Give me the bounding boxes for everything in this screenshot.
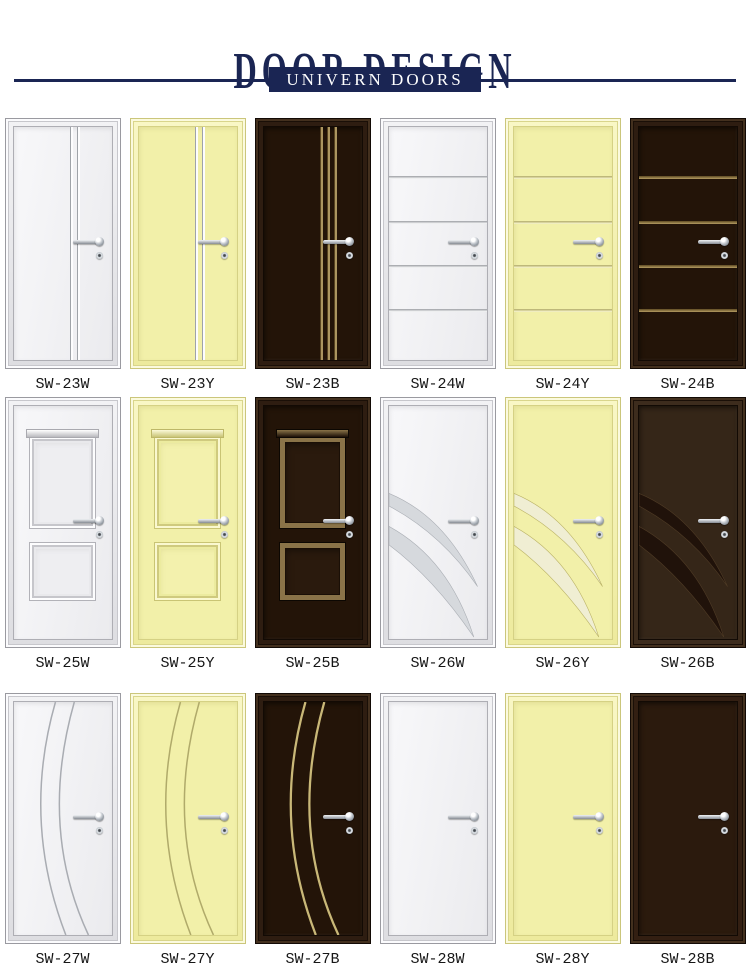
handle-rosette [470, 237, 479, 246]
door-image [130, 397, 246, 648]
door-image [505, 693, 621, 944]
door-leaf [513, 126, 613, 361]
keyhole [471, 827, 478, 834]
keyhole [596, 827, 603, 834]
keyhole [721, 827, 728, 834]
door-image [130, 118, 246, 369]
door-leaf [138, 701, 238, 936]
door-code: SW-25B [285, 655, 339, 672]
door-leaf [513, 701, 613, 936]
keyhole [346, 827, 353, 834]
door-handle [198, 516, 229, 540]
door-code: SW-24Y [535, 376, 589, 393]
door-handle [698, 812, 729, 836]
handle-rosette [220, 812, 229, 821]
door-code: SW-26W [410, 655, 464, 672]
door-code: SW-23W [35, 376, 89, 393]
door-leaf [513, 405, 613, 640]
door-card: SW-28B [625, 693, 750, 968]
handle-rosette [345, 237, 354, 246]
door-code: SW-24B [660, 376, 714, 393]
handle-rosette [95, 812, 104, 821]
door-card: SW-27B [250, 693, 375, 968]
door-code: SW-26Y [535, 655, 589, 672]
door-handle [698, 237, 729, 261]
door-code: SW-24W [410, 376, 464, 393]
handle-rosette [345, 812, 354, 821]
door-handle [73, 516, 104, 540]
door-image [255, 118, 371, 369]
door-leaf [13, 405, 113, 640]
handle-rosette [95, 516, 104, 525]
door-code: SW-27B [285, 951, 339, 968]
door-handle [198, 812, 229, 836]
door-leaf [638, 701, 738, 936]
door-handle [448, 237, 479, 261]
door-card: SW-26B [625, 397, 750, 672]
door-card: SW-27Y [125, 693, 250, 968]
door-card: SW-23Y [125, 118, 250, 393]
door-card: SW-27W [0, 693, 125, 968]
handle-rosette [595, 516, 604, 525]
door-image [630, 693, 746, 944]
keyhole [221, 531, 228, 538]
keyhole [221, 827, 228, 834]
handle-rosette [595, 237, 604, 246]
door-image [380, 693, 496, 944]
handle-rosette [220, 516, 229, 525]
keyhole [471, 531, 478, 538]
handle-rosette [220, 237, 229, 246]
door-code: SW-28Y [535, 951, 589, 968]
handle-rosette [95, 237, 104, 246]
door-leaf [388, 126, 488, 361]
door-card: SW-26W [375, 397, 500, 672]
handle-rosette [470, 516, 479, 525]
keyhole [721, 252, 728, 259]
door-code: SW-27W [35, 951, 89, 968]
handle-rosette [720, 812, 729, 821]
door-leaf [638, 405, 738, 640]
door-card: SW-24B [625, 118, 750, 393]
door-handle [73, 237, 104, 261]
brand-banner: UNIVERN DOORS [269, 67, 481, 92]
keyhole [596, 252, 603, 259]
door-code: SW-26B [660, 655, 714, 672]
door-handle [448, 812, 479, 836]
handle-rosette [720, 237, 729, 246]
door-card: SW-26Y [500, 397, 625, 672]
door-code: SW-23B [285, 376, 339, 393]
door-leaf [13, 701, 113, 936]
door-image [130, 693, 246, 944]
door-image [5, 693, 121, 944]
door-card: SW-28W [375, 693, 500, 968]
door-image [630, 118, 746, 369]
door-row: SW-25W SW-25Y SW-25B SW-26W SW-26Y SW-26… [0, 397, 750, 672]
door-row: SW-27W SW-27Y SW-27B SW-28W SW-28Y SW-28… [0, 693, 750, 968]
keyhole [596, 531, 603, 538]
door-card: SW-28Y [500, 693, 625, 968]
door-card: SW-24W [375, 118, 500, 393]
door-handle [698, 516, 729, 540]
door-card: SW-23B [250, 118, 375, 393]
door-card: SW-25W [0, 397, 125, 672]
door-leaf [138, 405, 238, 640]
door-card: SW-25B [250, 397, 375, 672]
handle-rosette [720, 516, 729, 525]
door-handle [323, 237, 354, 261]
door-card: SW-24Y [500, 118, 625, 393]
door-row: SW-23W SW-23Y SW-23B SW-24W SW-24Y SW-24… [0, 118, 750, 393]
door-leaf [638, 126, 738, 361]
door-image [505, 118, 621, 369]
keyhole [346, 531, 353, 538]
door-image [255, 693, 371, 944]
door-image [505, 397, 621, 648]
door-handle [323, 516, 354, 540]
handle-rosette [470, 812, 479, 821]
door-code: SW-25Y [160, 655, 214, 672]
door-handle [573, 812, 604, 836]
door-image [255, 397, 371, 648]
door-leaf [263, 126, 363, 361]
door-handle [573, 237, 604, 261]
keyhole [96, 827, 103, 834]
door-code: SW-28W [410, 951, 464, 968]
door-handle [73, 812, 104, 836]
door-bottom-panel [154, 542, 221, 600]
keyhole [721, 531, 728, 538]
door-leaf [263, 405, 363, 640]
handle-rosette [345, 516, 354, 525]
door-leaf [388, 405, 488, 640]
door-code: SW-23Y [160, 376, 214, 393]
door-image [380, 118, 496, 369]
door-leaf [138, 126, 238, 361]
keyhole [96, 531, 103, 538]
door-leaf [263, 701, 363, 936]
door-image [630, 397, 746, 648]
door-code: SW-25W [35, 655, 89, 672]
keyhole [346, 252, 353, 259]
door-card: SW-25Y [125, 397, 250, 672]
handle-rosette [595, 812, 604, 821]
door-leaf [388, 701, 488, 936]
door-handle [323, 812, 354, 836]
keyhole [96, 252, 103, 259]
keyhole [221, 252, 228, 259]
door-image [5, 397, 121, 648]
door-handle [198, 237, 229, 261]
door-code: SW-27Y [160, 951, 214, 968]
door-image [380, 397, 496, 648]
keyhole [471, 252, 478, 259]
door-code: SW-28B [660, 951, 714, 968]
door-bottom-panel [29, 542, 96, 600]
door-card: SW-23W [0, 118, 125, 393]
door-leaf [13, 126, 113, 361]
door-bottom-panel [279, 542, 346, 600]
door-handle [573, 516, 604, 540]
door-image [5, 118, 121, 369]
door-handle [448, 516, 479, 540]
